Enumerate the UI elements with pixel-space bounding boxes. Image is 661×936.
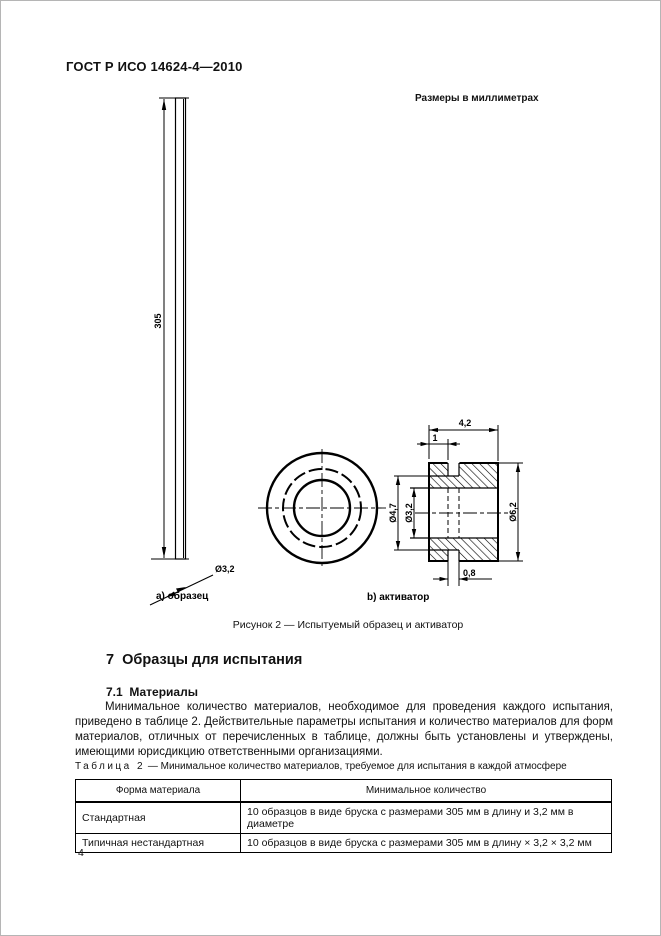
dim-label-d47: Ø4,7 <box>388 503 398 523</box>
dim-act-bore-dia: Ø3,2 <box>404 488 416 538</box>
dim-act-flange: 1 <box>417 433 460 460</box>
dim-label-bar-dia: Ø3,2 <box>215 564 235 574</box>
cell-qty-nonstandard: 10 образцов в виде бруска с размерами 30… <box>241 834 612 853</box>
col-header-material-form: Форма материала <box>76 780 241 803</box>
page-number: 4 <box>78 847 84 859</box>
figure-2-drawing: 305 Ø3,2 а) образец <box>1 86 661 611</box>
dim-act-width: 4,2 <box>429 418 498 461</box>
dim-label-0-8: 0,8 <box>463 568 476 578</box>
table-label-number: Таблица 2 <box>75 761 145 772</box>
dim-label-4-2: 4,2 <box>459 418 472 428</box>
document-page: ГОСТ Р ИСО 14624-4—2010 Размеры в миллим… <box>0 0 661 936</box>
table-row: Типичная нестандартная 10 образцов в вид… <box>76 834 612 853</box>
dim-bar-length: 305 <box>153 99 166 558</box>
table-header-row: Форма материала Минимальное количество <box>76 780 612 803</box>
specimen-bar-view: 305 Ø3,2 а) образец <box>150 98 235 605</box>
dim-label-d62: Ø6,2 <box>508 502 518 522</box>
activator-section-view: 4,2 1 Ø4,7 <box>367 418 523 603</box>
cell-form-standard: Стандартная <box>76 802 241 834</box>
doc-header: ГОСТ Р ИСО 14624-4—2010 <box>66 59 243 74</box>
cell-form-nonstandard: Типичная нестандартная <box>76 834 241 853</box>
dim-label-1: 1 <box>432 433 437 443</box>
table-row: Стандартная 10 образцов в виде бруска с … <box>76 802 612 834</box>
dim-act-outer-dia: Ø6,2 <box>498 463 523 561</box>
table-label: Таблица 2 — Минимальное количество матер… <box>75 761 613 772</box>
table-label-title: — Минимальное количество материалов, тре… <box>148 761 567 772</box>
section-paragraph: Минимальное количество материалов, необх… <box>75 700 613 760</box>
figure-caption: Рисунок 2 — Испытуемый образец и активат… <box>88 619 608 631</box>
specimen-label: а) образец <box>156 590 209 602</box>
dim-label-d32: Ø3,2 <box>404 503 414 523</box>
dim-act-slot: 0,8 <box>433 561 492 586</box>
activator-end-view <box>258 449 386 569</box>
dim-label-305: 305 <box>153 313 163 328</box>
activator-label: b) активатор <box>367 592 429 603</box>
col-header-min-quantity: Минимальное количество <box>241 780 612 803</box>
materials-table: Форма материала Минимальное количество С… <box>75 779 612 853</box>
section-subheading: 7.1 Материалы <box>106 685 198 699</box>
cell-qty-standard: 10 образцов в виде бруска с размерами 30… <box>241 802 612 834</box>
section-heading: 7 Образцы для испытания <box>106 652 302 668</box>
